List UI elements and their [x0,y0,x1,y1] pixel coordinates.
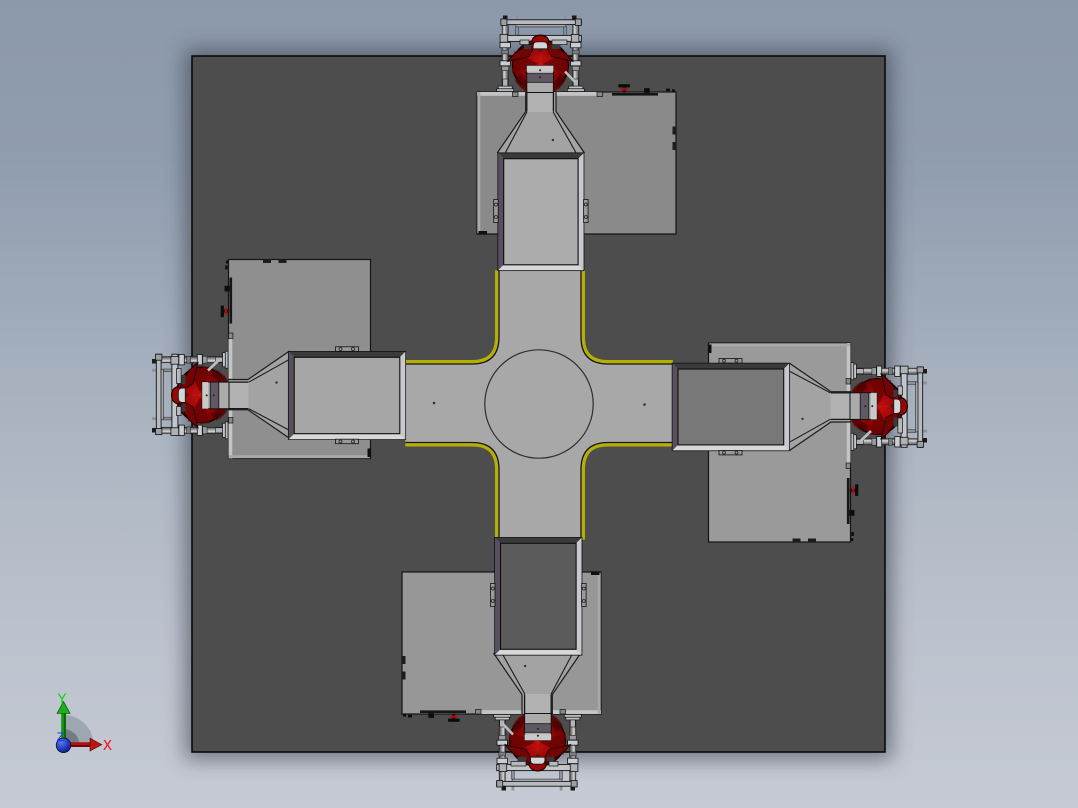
svg-text:X: X [103,738,112,755]
svg-text:Y: Y [58,692,67,709]
svg-text:Z: Z [57,730,65,745]
